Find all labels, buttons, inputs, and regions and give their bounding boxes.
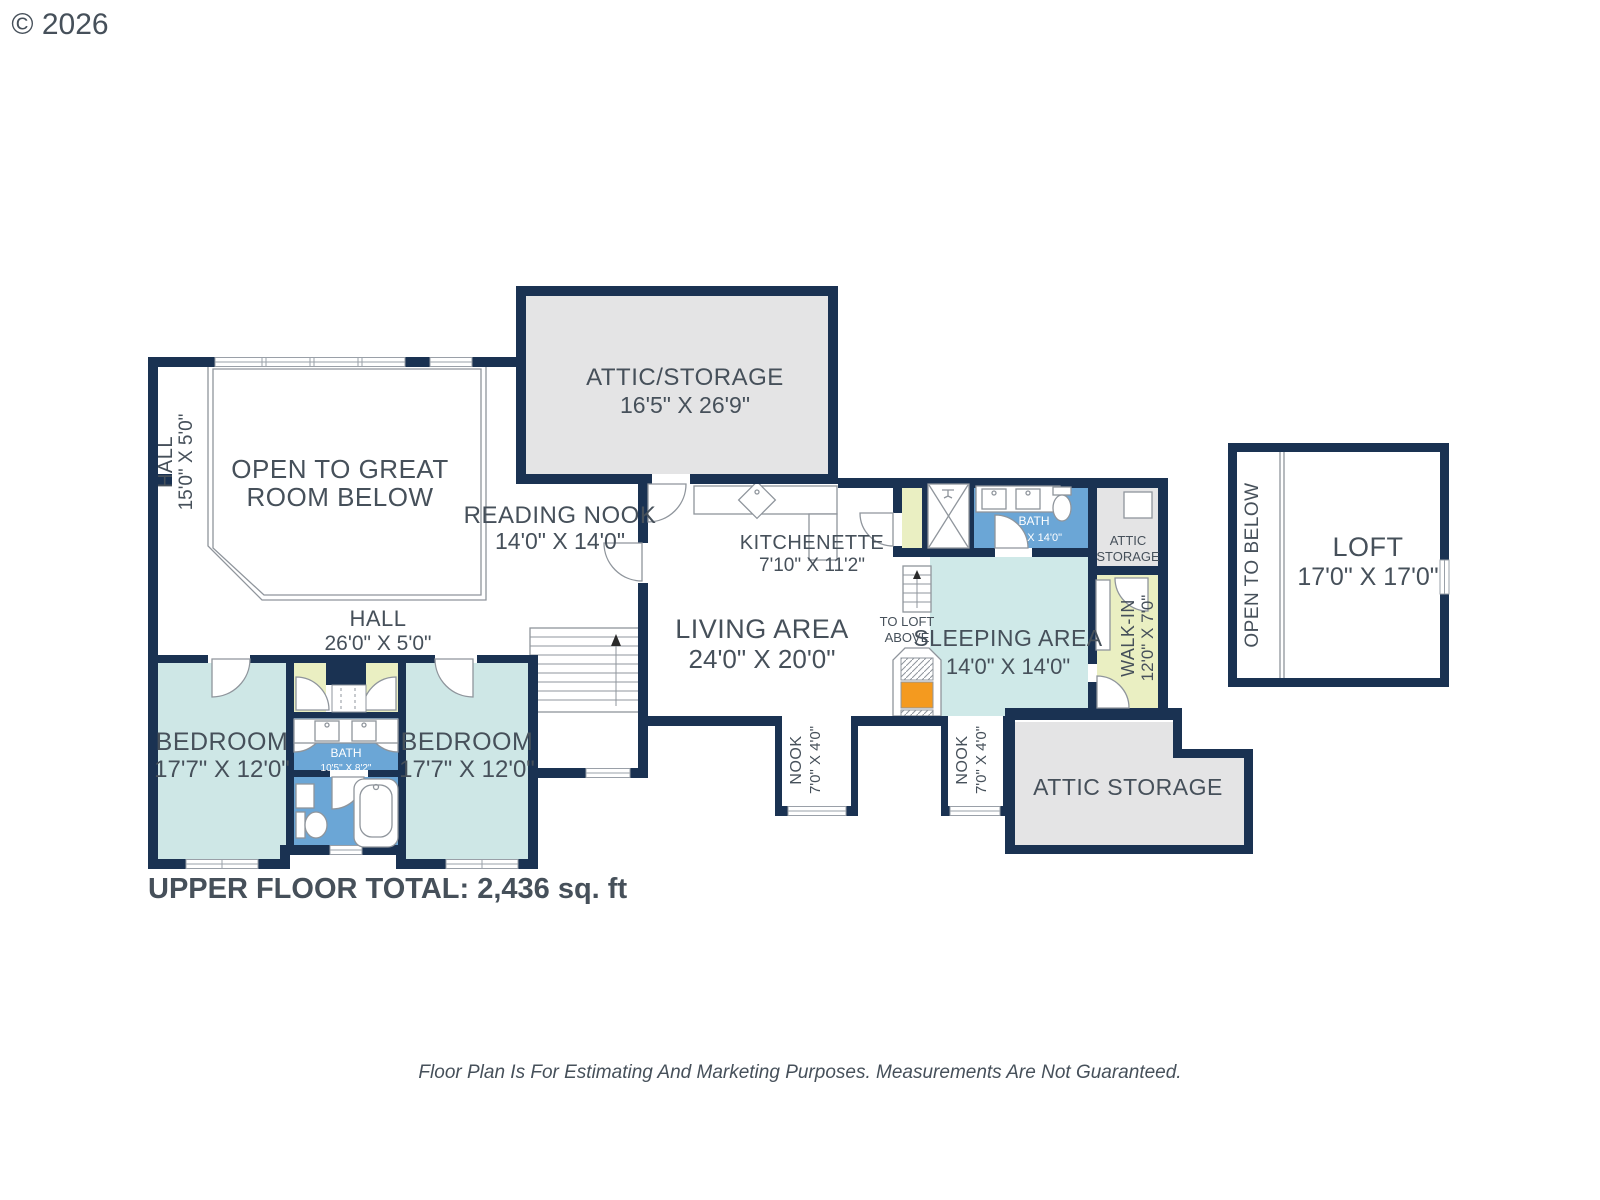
bath-main-label: BATH [330, 746, 361, 760]
sink [982, 489, 1006, 509]
sink [315, 721, 339, 741]
loft-dims: 17'0" X 17'0" [1297, 563, 1438, 591]
loft-access-staircase [903, 566, 931, 612]
toilet-tank [296, 812, 305, 838]
hall-left-dims: 15'0" X 5'0" [176, 414, 197, 511]
copyright: © 2026 [11, 8, 108, 41]
sink [1016, 489, 1040, 509]
window [430, 358, 472, 367]
window [1440, 560, 1449, 594]
bedroom-1-label: BEDROOM [156, 728, 289, 756]
window [950, 807, 1000, 816]
living-label: LIVING AREA [675, 614, 849, 644]
floor-plan-page: © 2026 ATTIC/STORAGE 16'5" X 26'9" OPEN … [0, 0, 1600, 1200]
toilet-tank [1053, 487, 1071, 495]
bath-main-dims: 10'5" X 8'2" [321, 763, 372, 774]
window [330, 846, 362, 855]
labels: © 2026 ATTIC/STORAGE 16'5" X 26'9" OPEN … [11, 8, 1438, 1083]
sleeping-dims: 14'0" X 14'0" [946, 654, 1070, 679]
nook-2-label: NOOK [954, 735, 971, 784]
bath-upper-dims: 5'1" X 14'0" [1006, 532, 1062, 544]
reading-nook-label: READING NOOK [464, 502, 657, 529]
bath-upper-label: BATH [1018, 514, 1049, 528]
attic-top-dims: 16'5" X 26'9" [620, 392, 750, 418]
window [788, 807, 846, 816]
floor-plan-drawing: © 2026 ATTIC/STORAGE 16'5" X 26'9" OPEN … [0, 0, 1600, 1200]
disclaimer: Floor Plan Is For Estimating And Marketi… [418, 1062, 1181, 1083]
attic-small-label-2: STORAGE [1096, 549, 1160, 564]
window [186, 860, 258, 869]
hall-center-label: HALL [349, 606, 406, 631]
walkin-dims: 12'0" X 7'0" [1138, 595, 1157, 682]
attic-bottom-label: ATTIC STORAGE [1033, 774, 1223, 800]
bedroom-2-label: BEDROOM [401, 728, 534, 756]
attic-small-label-1: ATTIC [1110, 533, 1147, 548]
attic-top-label: ATTIC/STORAGE [586, 364, 784, 391]
sink [352, 721, 376, 741]
hall-center-dims: 26'0" X 5'0" [325, 632, 432, 655]
bedroom-2-dims: 17'7" X 12'0" [399, 756, 535, 783]
hall-left-label: HALL [155, 436, 177, 488]
open-below-label: OPEN TO BELOW [1242, 482, 1263, 647]
attic-hatch [1124, 492, 1152, 518]
bedroom-1-dims: 17'7" X 12'0" [154, 756, 290, 783]
kitchenette-dims: 7'10" X 11'2" [759, 555, 865, 576]
nook-1-label: NOOK [788, 735, 805, 784]
nook-1-dims: 7'0" X 4'0" [807, 726, 824, 794]
sleeping-label: SLEEPING AREA [913, 625, 1102, 651]
open-great-label-1: OPEN TO GREAT [231, 454, 448, 484]
wood-stove [893, 648, 941, 716]
walkin-label: WALK-IN [1118, 599, 1138, 677]
window [446, 860, 518, 869]
window [586, 769, 630, 778]
nook-2-dims: 7'0" X 4'0" [973, 726, 990, 794]
loft-label: LOFT [1332, 532, 1403, 562]
toilet [1053, 495, 1071, 521]
upper-floor-total: UPPER FLOOR TOTAL: 2,436 sq. ft [148, 873, 627, 905]
open-great-label-2: ROOM BELOW [246, 482, 433, 512]
kitchenette-label: KITCHENETTE [740, 532, 884, 554]
reading-nook-dims: 14'0" X 14'0" [495, 528, 625, 554]
window [215, 358, 405, 367]
toilet [305, 812, 327, 838]
main-staircase [530, 628, 642, 712]
closet-strip-floor [902, 484, 922, 548]
living-dims: 24'0" X 20'0" [689, 644, 836, 674]
